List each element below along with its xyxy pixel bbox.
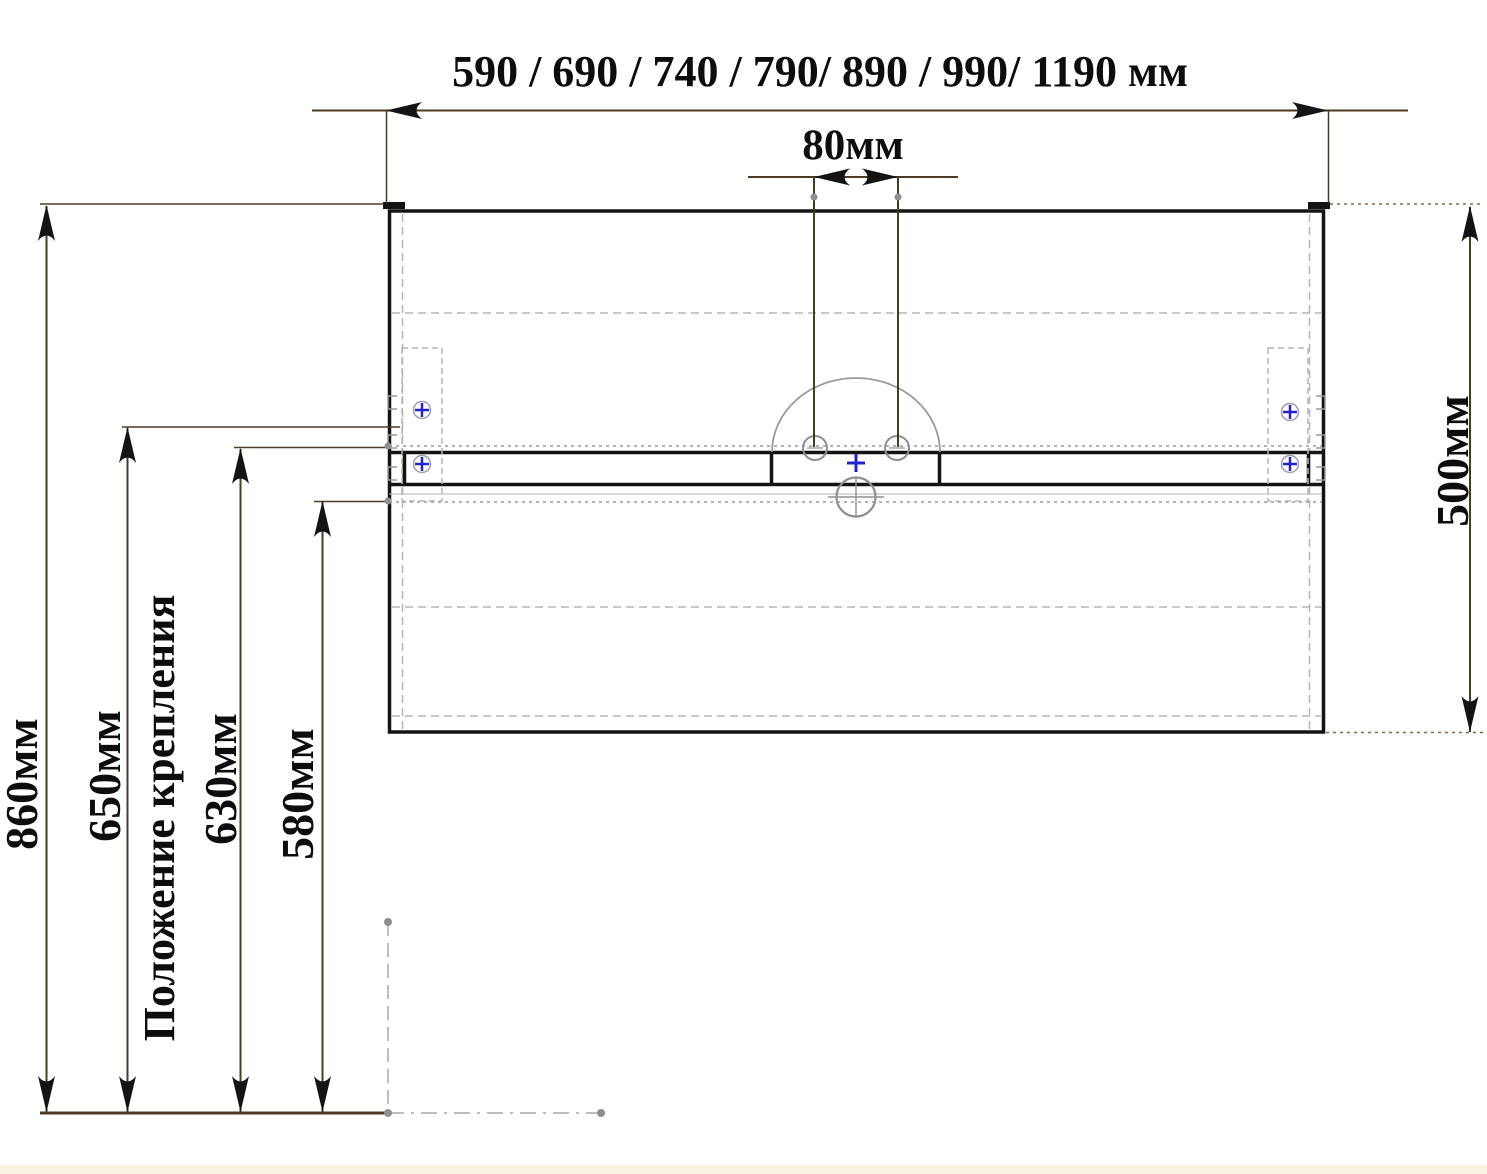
hanger-bracket-left xyxy=(383,202,405,209)
label-height-580: 580мм xyxy=(275,654,321,934)
centerline xyxy=(384,918,605,1117)
label-faucet-spacing: 80мм xyxy=(753,124,953,167)
hanger-bracket-right xyxy=(1308,202,1330,209)
technical-drawing-canvas: 590 / 690 / 740 / 790/ 890 / 990/ 1190 м… xyxy=(0,0,1487,1174)
label-width-options: 590 / 690 / 740 / 790/ 890 / 990/ 1190 м… xyxy=(330,50,1310,94)
label-height-650: 650мм xyxy=(82,636,128,916)
label-mounting-position: Положение крепления xyxy=(138,558,182,1078)
label-height-630: 630мм xyxy=(198,639,244,919)
footer-strip xyxy=(0,1165,1487,1174)
label-height-500: 500мм xyxy=(1430,321,1476,601)
label-height-860: 860мм xyxy=(0,644,45,924)
drawing-svg xyxy=(0,0,1487,1174)
